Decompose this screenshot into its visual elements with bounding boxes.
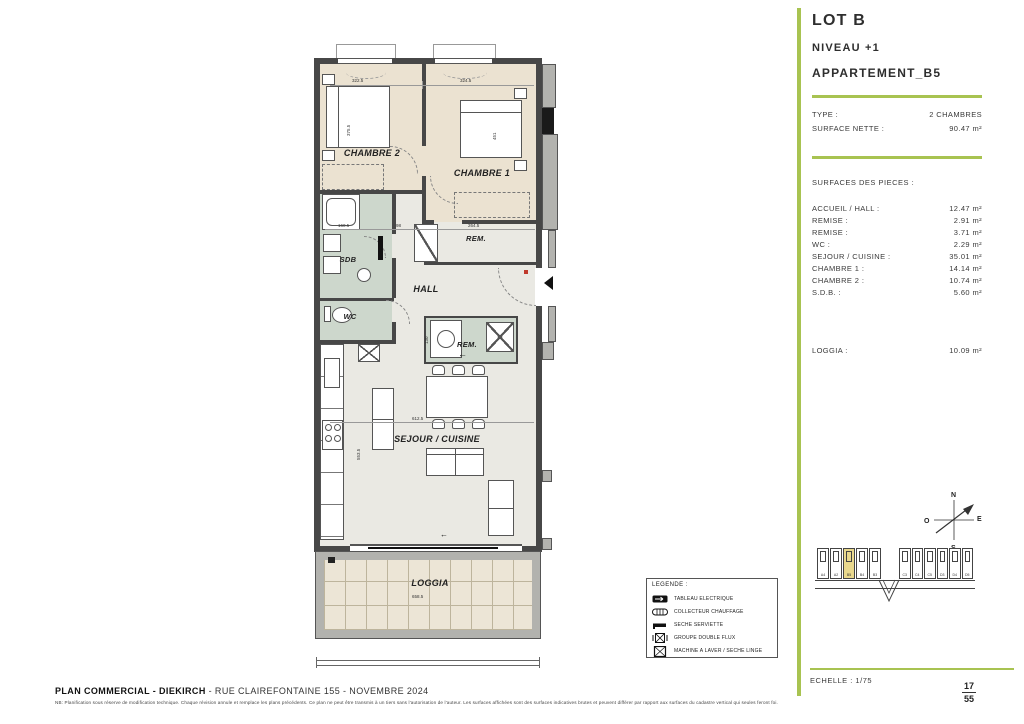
legend-row: MACHINE A LAVER / SECHE LINGE — [652, 645, 776, 657]
piece-label: S.D.B. : — [812, 288, 841, 297]
piece-label: CHAMBRE 2 : — [812, 276, 864, 285]
wall-poche — [542, 342, 554, 360]
burner-icon — [334, 435, 341, 442]
chair — [472, 365, 485, 375]
wall-poche — [548, 306, 556, 342]
chair — [452, 365, 465, 375]
groupe-double-flux-icon — [652, 633, 668, 643]
type-row: TYPE : 2 CHAMBRES — [812, 110, 982, 119]
wall-poche — [548, 230, 556, 268]
burner-icon — [325, 435, 332, 442]
keyplan-unit: C4 — [912, 548, 924, 579]
divider — [810, 668, 1014, 670]
keyplan-baseline — [815, 588, 975, 589]
bed — [326, 86, 390, 148]
dimension-line — [325, 229, 535, 230]
piece-row: REMISE :2.91 m² — [812, 216, 982, 225]
niveau-title: NIVEAU +1 — [812, 42, 880, 54]
piece-label: WC : — [812, 240, 830, 249]
piece-row: CHAMBRE 2 :10.74 m² — [812, 276, 982, 285]
room-label: SEJOUR / CUISINE — [372, 434, 502, 444]
keyplan-unit: B4 — [856, 548, 868, 579]
type-value: 2 CHAMBRES — [929, 110, 982, 119]
compass-n: N — [951, 492, 956, 499]
dimension-line — [330, 85, 534, 86]
dimension-tick — [539, 657, 540, 668]
piece-label: REMISE : — [812, 228, 848, 237]
window-sill — [336, 44, 396, 59]
page-number-current: 17 — [960, 681, 978, 691]
compass: N S O E — [922, 488, 986, 552]
piece-value: 3.71 m² — [954, 228, 982, 237]
dimension-label: 160.5 — [338, 223, 349, 228]
piece-label: CHAMBRE 1 : — [812, 264, 864, 273]
dimension-label: 324.5 — [460, 78, 471, 83]
shaft — [542, 108, 554, 134]
legend-title: LEGENDE : — [652, 582, 688, 588]
legend-row: COLLECTEUR CHAUFFAGE — [652, 606, 776, 618]
room-label: LOGGIA — [385, 578, 475, 588]
page-number-divider — [962, 692, 976, 693]
piece-value: 10.74 m² — [949, 276, 982, 285]
piece-row: SEJOUR / CUISINE :35.01 m² — [812, 252, 982, 261]
piece-value: 14.14 m² — [949, 264, 982, 273]
drain — [328, 557, 335, 563]
burner-icon — [325, 424, 332, 431]
entrance-opening — [535, 268, 543, 306]
dining-table — [426, 376, 488, 418]
stove — [322, 420, 343, 450]
legend-item-label: SECHE SERVIETTE — [674, 622, 723, 628]
nightstand — [514, 88, 527, 99]
room-label: CHAMBRE 2 — [326, 148, 418, 158]
window — [435, 58, 492, 64]
sliding-door-panel — [368, 547, 498, 549]
window-sill — [433, 44, 496, 59]
dimension-label: 130 — [424, 336, 429, 344]
piece-label: ACCUEIL / HALL : — [812, 204, 880, 213]
loggia-row: LOGGIA : 10.09 m² — [812, 346, 982, 355]
surface-value: 90.47 m² — [949, 124, 982, 133]
piece-row: S.D.B. :5.60 m² — [812, 288, 982, 297]
sofa — [426, 448, 484, 476]
piece-label: SEJOUR / CUISINE : — [812, 252, 890, 261]
sink — [357, 268, 371, 282]
arrow-icon: ← — [440, 530, 448, 539]
surface-row: SURFACE NETTE : 90.47 m² — [812, 124, 982, 133]
wall-segment — [424, 262, 536, 265]
legend-item-label: GROUPE DOUBLE FLUX — [674, 635, 735, 641]
entrance-marker — [544, 276, 553, 290]
machine-a-laver-icon — [652, 646, 668, 657]
keyplan-unit: B5 — [843, 548, 855, 579]
dimension-label: 264.5 — [468, 223, 479, 228]
piece-value: 5.60 m² — [954, 288, 982, 297]
loggia-value: 10.09 m² — [949, 346, 982, 355]
chair — [472, 419, 485, 429]
wardrobe — [322, 164, 384, 190]
kitchen-sink — [324, 358, 340, 388]
keyplan: A4A2B5B4B3C3C4C5D3D4D5 — [815, 546, 1015, 616]
chair — [452, 419, 465, 429]
legend-row: SECHE SERVIETTE — [652, 619, 776, 631]
footer-title-bold: PLAN COMMERCIAL - DIEKIRCH — [55, 686, 206, 696]
legend-item-label: MACHINE A LAVER / SECHE LINGE — [674, 648, 762, 654]
keyplan-unit: D5 — [962, 548, 974, 579]
keyplan-unit: A4 — [817, 548, 829, 579]
nightstand — [322, 74, 335, 85]
wall-segment — [392, 322, 396, 342]
piece-row: CHAMBRE 1 :14.14 m² — [812, 264, 982, 273]
dimension-label: 553.5 — [356, 449, 361, 460]
piece-value: 12.47 m² — [949, 204, 982, 213]
accent-bar — [797, 8, 801, 696]
wall-segment — [422, 64, 426, 146]
dimension-line — [330, 422, 534, 423]
seche-serviette-icon — [652, 621, 668, 629]
legend-row: TABLEAU ELECTRIQUE — [652, 593, 776, 605]
dimension-line — [316, 665, 540, 666]
tableau-electrique-mark — [524, 270, 528, 274]
dimension-label: 322.5 — [352, 78, 363, 83]
piece-row: REMISE :3.71 m² — [812, 228, 982, 237]
wall-poche — [542, 538, 552, 550]
pieces-title: SURFACES DES PIECES : — [812, 178, 914, 187]
legend: LEGENDE : TABLEAU ELECTRIQUE COLLECTEUR … — [646, 578, 778, 658]
legend-row: GROUPE DOUBLE FLUX — [652, 632, 776, 644]
keyplan-unit: B3 — [869, 548, 881, 579]
piece-row: ACCUEIL / HALL :12.47 m² — [812, 204, 982, 213]
keyplan-unit: A2 — [830, 548, 842, 579]
dimension-label: 98 — [396, 223, 401, 228]
loggia — [316, 552, 540, 638]
tv-cabinet — [488, 480, 514, 536]
wall-segment — [422, 176, 426, 226]
chair — [432, 365, 445, 375]
room-label: HALL — [396, 284, 456, 294]
dimension-label: 612.5 — [412, 416, 423, 421]
dimension-label: 451 — [492, 132, 497, 140]
keyplan-baseline — [815, 580, 975, 581]
wall-poche — [542, 64, 556, 108]
dimension-tick — [316, 657, 317, 668]
lot-title: LOT B — [812, 12, 866, 30]
bed — [460, 100, 522, 158]
wall-poche — [542, 134, 558, 230]
towel-radiator — [378, 236, 383, 260]
room-label: SDB — [328, 255, 368, 264]
piece-label: REMISE : — [812, 216, 848, 225]
type-label: TYPE : — [812, 110, 838, 119]
arrow-icon: ← — [458, 349, 467, 359]
footer-title: PLAN COMMERCIAL - DIEKIRCH - RUE CLAIREF… — [55, 686, 429, 696]
page-number-total: 55 — [960, 694, 978, 704]
collecteur-chauffage-icon — [652, 608, 668, 616]
room-label: REM. — [446, 234, 506, 243]
apartment-title: APPARTEMENT_B5 — [812, 66, 941, 80]
scale-label: ECHELLE : 1/75 — [810, 676, 872, 685]
footer-disclaimer: NB: Planification sous réserve de modifi… — [55, 700, 778, 705]
divider — [812, 156, 982, 159]
piece-value: 2.29 m² — [954, 240, 982, 249]
piece-value: 2.91 m² — [954, 216, 982, 225]
keyplan-unit: D3 — [937, 548, 949, 579]
chair — [432, 419, 445, 429]
room-label: WC — [330, 312, 370, 321]
room-label: CHAMBRE 1 — [434, 168, 530, 178]
room-label: REM. — [442, 340, 492, 349]
surface-label: SURFACE NETTE : — [812, 124, 884, 133]
burner-icon — [334, 424, 341, 431]
loggia-label: LOGGIA : — [812, 346, 848, 355]
dimension-line — [316, 660, 540, 661]
washbasin — [323, 234, 341, 252]
dishwasher — [358, 344, 380, 362]
dimension-label: 375.5 — [346, 125, 351, 136]
keyplan-unit: D4 — [949, 548, 961, 579]
wall-poche — [542, 470, 552, 482]
compass-e: E — [977, 516, 982, 523]
keyplan-ramp — [877, 578, 903, 604]
dimension-label: 658.5 — [412, 594, 423, 599]
legend-item-label: TABLEAU ELECTRIQUE — [674, 596, 733, 602]
wall-segment — [320, 298, 394, 301]
compass-o: O — [924, 518, 930, 525]
wardrobe — [454, 192, 530, 218]
keyplan-unit: C5 — [924, 548, 936, 579]
tableau-electrique-icon — [652, 595, 668, 603]
keyplan-unit: C3 — [899, 548, 911, 579]
footer-title-rest: - RUE CLAIREFONTAINE 155 - NOVEMBRE 2024 — [206, 686, 429, 696]
dimension-tick — [422, 81, 423, 89]
window — [338, 58, 392, 64]
piece-value: 35.01 m² — [949, 252, 982, 261]
piece-row: WC :2.29 m² — [812, 240, 982, 249]
legend-item-label: COLLECTEUR CHAUFFAGE — [674, 609, 744, 615]
page: ← ← CHAMBRE 2 CHAMBRE 1 SDB WC HALL REM.… — [0, 0, 1024, 724]
divider — [812, 95, 982, 98]
